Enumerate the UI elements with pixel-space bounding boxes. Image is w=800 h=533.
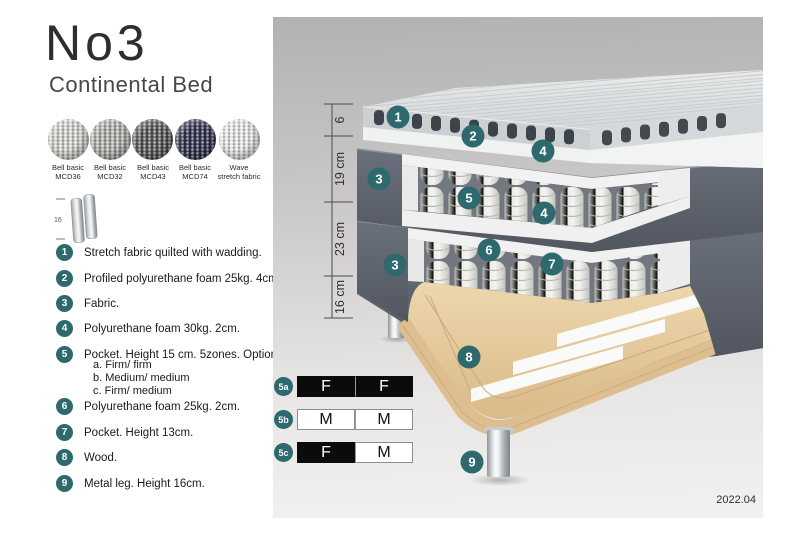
firmness-cell: F — [297, 376, 355, 397]
firmness-cell: F — [297, 442, 355, 463]
firmness-bar-5a: F F — [297, 376, 413, 397]
firmness-bar-5c: F M — [297, 442, 413, 463]
dim-label-topper: 6 — [333, 116, 347, 123]
badge-5-label: 5 — [465, 191, 472, 206]
firmness-cell: M — [355, 409, 413, 430]
badge-6-label: 6 — [485, 243, 492, 258]
badge-9: 9 — [461, 451, 484, 474]
badge-4a-label: 4 — [539, 144, 547, 159]
badge-3b: 3 — [384, 254, 407, 277]
firmness-row-5a: 5a F F — [274, 376, 413, 397]
version-stamp: 2022.04 — [700, 494, 756, 506]
badge-2-label: 2 — [469, 129, 476, 144]
badge-3a: 3 — [368, 168, 391, 191]
badge-1-label: 1 — [394, 110, 401, 125]
firmness-row-5b: 5b M M — [274, 409, 413, 430]
firmness-bar-5b: M M — [297, 409, 413, 430]
firmness-cell: F — [355, 376, 413, 397]
badge-4b: 4 — [533, 202, 556, 225]
badge-1: 1 — [387, 106, 410, 129]
badge-4a: 4 — [532, 140, 555, 163]
badge-9-label: 9 — [468, 455, 475, 470]
badge-2: 2 — [462, 125, 485, 148]
badge-4b-label: 4 — [540, 206, 548, 221]
dimension-labels: 6 19 cm 23 cm 16 cm — [333, 116, 347, 314]
metal-leg-front — [487, 430, 510, 477]
firmness-badge-5c: 5c — [274, 443, 293, 462]
badge-5: 5 — [458, 187, 481, 210]
topper-mattress — [363, 53, 800, 168]
firmness-cell: M — [355, 442, 413, 463]
firmness-row-5c: 5c F M — [274, 442, 413, 463]
badge-3a-label: 3 — [375, 172, 382, 187]
badge-3b-label: 3 — [391, 258, 398, 273]
badge-8: 8 — [458, 346, 481, 369]
spec-sheet-page: No3 Continental Bed Bell basicMCD36 Bell… — [0, 0, 800, 533]
dim-label-leg: 16 cm — [333, 280, 347, 314]
badge-7: 7 — [541, 253, 564, 276]
firmness-cell: M — [297, 409, 355, 430]
badge-6: 6 — [478, 239, 501, 262]
badge-7-label: 7 — [548, 257, 555, 272]
dim-label-mattress: 19 cm — [333, 152, 347, 186]
firmness-badge-5a: 5a — [274, 377, 293, 396]
badge-8-label: 8 — [465, 350, 472, 365]
firmness-badge-5b: 5b — [274, 410, 293, 429]
dim-label-base: 23 cm — [333, 222, 347, 256]
